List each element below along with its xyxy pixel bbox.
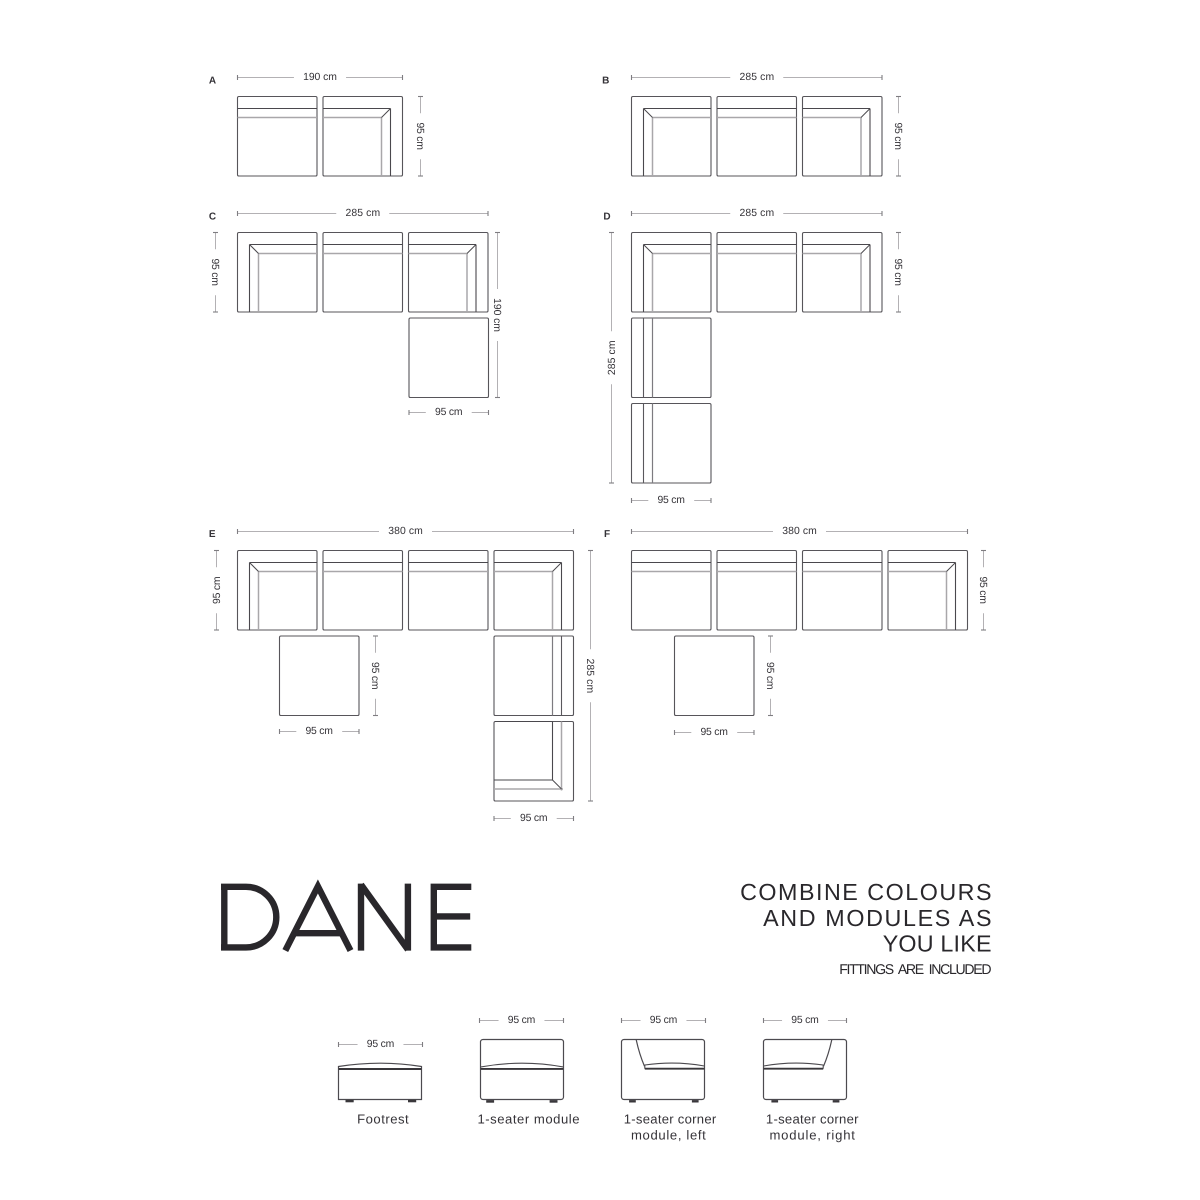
svg-text:380 cm: 380 cm: [388, 526, 423, 537]
svg-text:1-seater corner: 1-seater corner: [624, 1112, 717, 1127]
svg-text:285 cm: 285 cm: [346, 208, 381, 219]
svg-text:95 cm: 95 cm: [650, 1015, 678, 1026]
svg-text:95 cm: 95 cm: [435, 407, 463, 418]
svg-text:C: C: [209, 212, 216, 223]
svg-text:B: B: [602, 75, 609, 86]
svg-text:285 cm: 285 cm: [607, 341, 618, 376]
svg-text:95 cm: 95 cm: [305, 726, 333, 737]
svg-text:285 cm: 285 cm: [584, 659, 595, 694]
svg-text:FITTINGS ARE INCLUDED: FITTINGS ARE INCLUDED: [839, 961, 991, 977]
svg-text:95 cm: 95 cm: [367, 1039, 395, 1050]
svg-text:F: F: [604, 529, 610, 540]
svg-text:95 cm: 95 cm: [414, 122, 425, 150]
svg-text:95 cm: 95 cm: [369, 662, 380, 690]
svg-text:285 cm: 285 cm: [740, 208, 775, 219]
svg-text:module, right: module, right: [769, 1127, 855, 1142]
svg-text:A: A: [209, 75, 216, 86]
svg-text:285 cm: 285 cm: [740, 72, 775, 83]
svg-text:380 cm: 380 cm: [782, 526, 817, 537]
svg-text:95 cm: 95 cm: [700, 727, 728, 738]
svg-text:95 cm: 95 cm: [977, 576, 988, 604]
svg-text:95 cm: 95 cm: [892, 122, 903, 150]
svg-text:95 cm: 95 cm: [212, 576, 223, 604]
svg-text:95 cm: 95 cm: [520, 813, 548, 824]
svg-text:COMBINE COLOURS: COMBINE COLOURS: [740, 879, 991, 905]
svg-text:1-seater corner: 1-seater corner: [766, 1112, 859, 1127]
svg-text:190 cm: 190 cm: [491, 298, 502, 332]
svg-text:190 cm: 190 cm: [303, 72, 337, 83]
svg-text:YOU LIKE: YOU LIKE: [883, 931, 992, 957]
svg-text:95 cm: 95 cm: [209, 258, 220, 286]
svg-text:module, left: module, left: [631, 1127, 706, 1142]
svg-text:D: D: [603, 212, 610, 223]
svg-text:95 cm: 95 cm: [791, 1015, 819, 1026]
svg-text:1-seater module: 1-seater module: [477, 1112, 579, 1127]
svg-text:95 cm: 95 cm: [764, 662, 775, 690]
svg-text:Footrest: Footrest: [357, 1111, 409, 1126]
svg-text:95 cm: 95 cm: [508, 1015, 536, 1026]
svg-text:95 cm: 95 cm: [892, 258, 903, 286]
svg-text:E: E: [209, 529, 216, 540]
svg-text:95 cm: 95 cm: [657, 495, 685, 506]
